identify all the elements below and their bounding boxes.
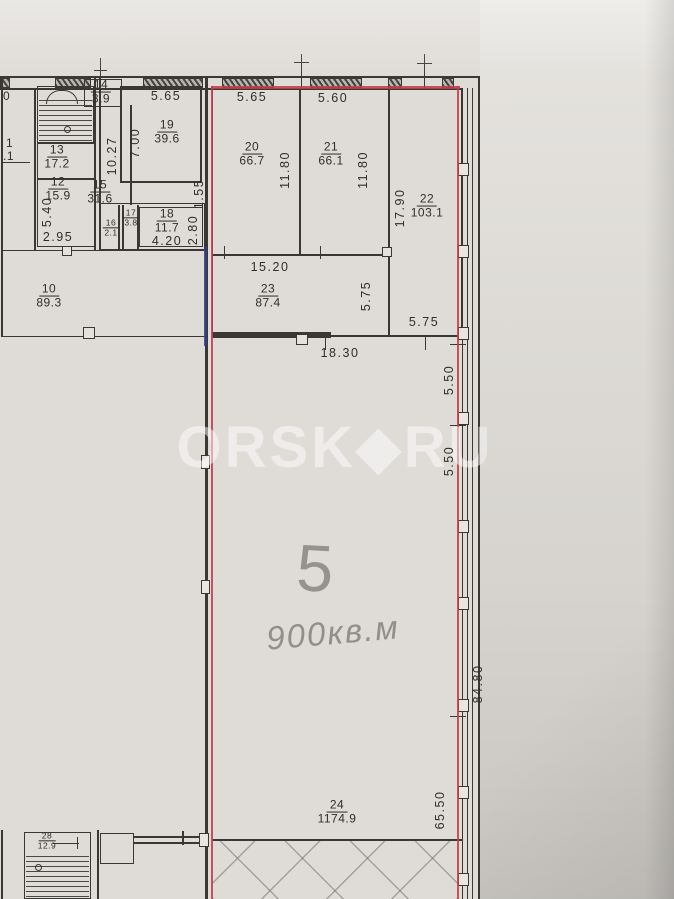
paper-shading: [480, 560, 674, 899]
wall-segment: [388, 88, 390, 337]
room-area: 31.6: [87, 193, 112, 206]
room-label-23: 2387.4: [255, 283, 280, 310]
room-area: 3.9: [91, 93, 111, 106]
door-opening: [382, 247, 392, 257]
stair-tread: [39, 135, 92, 136]
wall-segment: [472, 88, 473, 899]
paper-shading: [0, 0, 674, 78]
room-label-18: 1811.7: [155, 208, 179, 235]
room-label-16: 162.1: [103, 218, 119, 237]
room-number: 18: [157, 208, 177, 222]
wall-segment: [299, 88, 301, 255]
edge-label-fragment: 0: [3, 89, 10, 103]
dimension-label: 11.80: [278, 151, 292, 189]
room-label-15: 1531.6: [87, 179, 112, 206]
room-number: 12: [48, 176, 68, 190]
hatched-floor-area: [212, 841, 458, 899]
stair-tread: [39, 115, 92, 116]
room-label-22: 22103.1: [411, 193, 444, 220]
window-symbol: [458, 163, 469, 176]
door-opening: [296, 334, 308, 345]
room-area: 66.7: [239, 155, 264, 168]
window-symbol: [458, 786, 469, 799]
edge-label-fragment: .1: [3, 149, 14, 163]
room-label-20: 2066.7: [239, 141, 264, 168]
room-label-19: 1939.6: [154, 119, 179, 146]
room-outline: [2, 250, 206, 337]
room-number: 23: [258, 283, 278, 297]
wall-segment: [213, 332, 331, 338]
window-symbol: [458, 520, 469, 533]
edge-label-fragment: 1: [6, 136, 13, 150]
door-opening: [62, 246, 72, 256]
wall-segment: [134, 836, 204, 838]
room-label-10: 1089.3: [36, 283, 61, 310]
wall-segment: [34, 88, 36, 250]
room-number: 20: [242, 141, 262, 155]
handwritten-area-note: 900кв.м: [265, 608, 401, 658]
dimension-label: 5.75: [359, 281, 373, 311]
wall-segment: [462, 88, 463, 899]
handwritten-room-number: 5: [295, 529, 336, 607]
dimension-label: 1.55: [192, 179, 206, 209]
room-number: 10: [39, 283, 59, 297]
room-area: 39.6: [154, 133, 179, 146]
dimension-tick: [417, 63, 432, 64]
stair-newel: [35, 864, 42, 871]
floor-plan-scan: ORSK◆RU 5 900кв.м 1317.21215.9143.91531.…: [0, 0, 674, 899]
dimension-tick: [94, 70, 107, 71]
room-number: 13: [47, 144, 67, 158]
stair-tread: [39, 120, 92, 121]
dimension-label: 5.65: [151, 89, 181, 103]
dimension-label: 5.75: [409, 315, 439, 329]
wall-segment: [97, 830, 99, 899]
blue-marker-line: [204, 247, 207, 346]
room-number: 22: [417, 193, 437, 207]
wall-segment: [212, 254, 389, 256]
wall-segment: [478, 76, 480, 899]
dimension-label: 7.00: [128, 128, 142, 158]
dimension-label: 2.95: [43, 230, 73, 244]
window-symbol: [458, 597, 469, 610]
wall-segment: [331, 335, 462, 337]
stair-tread: [26, 891, 89, 892]
room-area: 2.1: [103, 229, 119, 238]
room-number: 21: [321, 141, 341, 155]
room-label-24: 241174.9: [318, 799, 357, 826]
dimension-tick: [53, 843, 79, 844]
room-area: 11.7: [155, 222, 179, 235]
dimension-label: 5.65: [237, 90, 267, 104]
paper-shading: [645, 0, 674, 899]
dimension-label: 5.40: [40, 197, 54, 227]
dimension-label: 65.50: [433, 791, 447, 830]
window-symbol: [458, 699, 469, 712]
wall-segment: [467, 88, 468, 899]
dimension-tick: [424, 54, 425, 90]
room-outline: [100, 833, 134, 864]
room-number: 15: [90, 179, 110, 193]
room-area: 1174.9: [318, 813, 357, 826]
stair-tread: [26, 871, 89, 872]
stair-tread: [26, 886, 89, 887]
room-label-21: 2166.1: [318, 141, 343, 168]
room-area: 17.2: [44, 158, 69, 171]
room-number: 19: [157, 119, 177, 133]
dimension-tick: [182, 831, 184, 845]
wall-segment: [134, 842, 204, 844]
dimension-label: 10.27: [105, 137, 119, 176]
stair-tread: [39, 140, 92, 141]
dimension-label: 84.80: [471, 665, 485, 704]
room-area: 103.1: [411, 207, 444, 220]
stair-tread: [39, 110, 92, 111]
dimension-label: 5.60: [318, 91, 348, 105]
dimension-label: 5.50: [442, 446, 456, 476]
window-symbol: [199, 833, 209, 847]
stair-newel: [64, 126, 71, 133]
wall-segment: [1, 830, 3, 899]
door-opening: [83, 327, 95, 339]
red-marker-line: [457, 86, 460, 899]
window-symbol: [458, 245, 469, 258]
stair-tread: [26, 876, 89, 877]
room-number: 24: [327, 799, 347, 813]
dimension-label: 15.20: [251, 260, 290, 274]
paper-shading: [480, 0, 674, 899]
dimension-tick: [320, 246, 321, 259]
room-area: 66.1: [318, 155, 343, 168]
window-symbol: [201, 580, 210, 594]
dimension-tick: [425, 337, 426, 350]
dimension-label: 11.80: [356, 151, 370, 189]
room-label-13: 1317.2: [44, 144, 69, 171]
stair-tread: [26, 881, 89, 882]
dimension-label: 4.20: [152, 234, 182, 248]
dimension-tick: [294, 62, 309, 63]
window-symbol: [458, 327, 469, 340]
dimension-label: 2.80: [186, 215, 200, 245]
dimension-label: 17.90: [393, 189, 407, 228]
room-label-28: 2812.9: [38, 831, 57, 850]
room-label-17: 173.8: [123, 208, 139, 227]
room-area: 87.4: [255, 297, 280, 310]
red-marker-line: [211, 86, 214, 899]
room-area: 89.3: [36, 297, 61, 310]
dimension-tick: [77, 837, 78, 849]
dimension-label: 5.50: [442, 365, 456, 395]
room-area: 3.8: [123, 219, 139, 228]
window-symbol: [458, 873, 469, 886]
stair-tread: [26, 861, 89, 862]
dimension-tick: [224, 246, 225, 259]
dimension-tick: [301, 54, 302, 90]
room-number: 14: [91, 79, 111, 93]
room-area: 12.9: [38, 842, 57, 851]
room-label-14: 143.9: [91, 79, 111, 106]
dimension-tick: [294, 77, 309, 78]
stair-tread: [26, 896, 89, 897]
dimension-label: 18.30: [321, 346, 360, 360]
stair-tread: [26, 856, 89, 857]
red-marker-line: [211, 86, 460, 89]
